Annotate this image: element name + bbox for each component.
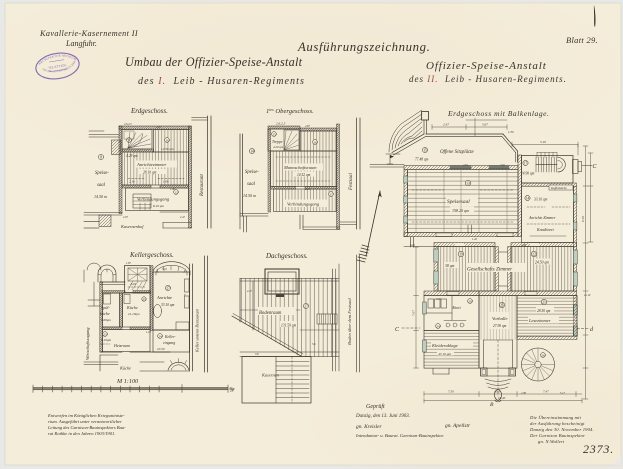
svg-text:14.52 qm: 14.52 qm — [297, 173, 311, 177]
svg-text:33.10 qm: 33.10 qm — [161, 303, 175, 307]
svg-text:des II. Leib - Husaren-Regime: des II. Leib - Husaren-Regiments. — [409, 74, 567, 84]
svg-text:Erdgeschoss.: Erdgeschoss. — [130, 107, 168, 115]
svg-text:Keller unterm Restaurant: Keller unterm Restaurant — [195, 308, 200, 353]
svg-text:saal: saal — [97, 183, 106, 188]
svg-text:25: 25 — [500, 304, 504, 308]
svg-text:2.6.2.5: 2.6.2.5 — [276, 122, 286, 126]
svg-text:77.48 qm: 77.48 qm — [415, 158, 429, 162]
svg-text:5.10: 5.10 — [162, 268, 167, 271]
svg-text:38 qm: 38 qm — [445, 264, 455, 268]
svg-text:Speisesaal: Speisesaal — [447, 199, 470, 205]
svg-text:E: E — [183, 294, 186, 297]
svg-text:Treppe: Treppe — [272, 140, 283, 144]
svg-text:der Ausführung bescheinigt: der Ausführung bescheinigt — [530, 421, 585, 426]
svg-text:Küche: Küche — [119, 366, 131, 371]
svg-text:5.6: 5.6 — [312, 343, 316, 346]
svg-text:21: 21 — [542, 301, 546, 305]
svg-text:Verbindungsgang: Verbindungsgang — [287, 202, 320, 207]
svg-text:2.47: 2.47 — [247, 290, 252, 293]
svg-text:1.26: 1.26 — [472, 238, 477, 241]
svg-text:gn. N.Wallert: gn. N.Wallert — [538, 439, 565, 444]
svg-text:saal: saal — [247, 182, 256, 187]
svg-text:1.06: 1.06 — [170, 188, 175, 191]
svg-text:13: 13 — [466, 182, 470, 186]
svg-text:24: 24 — [436, 325, 440, 329]
svg-text:Festsaal: Festsaal — [349, 172, 354, 191]
svg-text:47.10 qm: 47.10 qm — [438, 352, 452, 356]
svg-text:28.10 qm: 28.10 qm — [143, 171, 157, 175]
svg-text:Ausführungszeichnung.: Ausführungszeichnung. — [297, 40, 430, 54]
svg-text:2.6.2.5: 2.6.2.5 — [124, 123, 132, 126]
svg-text:1tes Obergeschoss.: 1tes Obergeschoss. — [266, 107, 314, 115]
svg-text:8.10: 8.10 — [581, 216, 585, 222]
svg-text:Die Übereinstimmung mit: Die Übereinstimmung mit — [529, 415, 582, 420]
svg-text:16: 16 — [313, 141, 317, 145]
svg-text:2373.: 2373. — [583, 442, 614, 456]
svg-text:Intendantur- u. Baurat. Garni: Intendantur- u. Baurat. Garnison-Bauinsp… — [355, 433, 444, 438]
svg-text:28.50 qm: 28.50 qm — [537, 309, 551, 313]
svg-text:2.10: 2.10 — [129, 180, 135, 184]
svg-text:Restaurant: Restaurant — [200, 173, 205, 197]
svg-text:2.62: 2.62 — [500, 164, 505, 167]
svg-text:Leitung des Garnison-Bauinspek: Leitung des Garnison-Bauinspektors Bau- — [47, 425, 126, 430]
svg-text:rat Rothke in den Jahren 1903/: rat Rothke in den Jahren 1903/1901. — [48, 431, 115, 436]
svg-text:10: 10 — [165, 139, 169, 143]
svg-text:Lesezimmer: Lesezimmer — [528, 318, 551, 323]
svg-text:Kasernen: Kasernen — [261, 373, 280, 378]
svg-text:1.10: 1.10 — [146, 331, 151, 334]
svg-text:Mannschaftsraum: Mannschaftsraum — [283, 165, 317, 170]
svg-text:1.06: 1.06 — [163, 180, 169, 184]
svg-text:14: 14 — [526, 197, 530, 201]
svg-text:23: 23 — [103, 333, 107, 337]
svg-text:4.29: 4.29 — [130, 282, 136, 286]
svg-text:15: 15 — [423, 149, 427, 153]
svg-text:Geprüft: Geprüft — [366, 403, 385, 410]
svg-text:14.50 m: 14.50 m — [94, 194, 107, 199]
svg-text:10.30: 10.30 — [157, 347, 165, 351]
svg-text:Anrichtezimmer: Anrichtezimmer — [136, 162, 167, 167]
svg-text:Boden über dem Festsaal: Boden über dem Festsaal — [347, 297, 352, 345]
svg-text:Offene Sitzplätze: Offene Sitzplätze — [440, 150, 475, 155]
svg-text:6.10qm: 6.10qm — [101, 338, 112, 342]
svg-text:M 1:100: M 1:100 — [116, 378, 139, 385]
svg-text:Kaffeeküche: Kaffeeküche — [550, 186, 567, 190]
svg-text:14.50 qm: 14.50 qm — [161, 147, 174, 151]
svg-text:Verbindungsgang: Verbindungsgang — [137, 197, 170, 202]
svg-text:Entworfen im Königlichen Krieg: Entworfen im Königlichen Kriegsministe- — [47, 413, 125, 418]
svg-text:Heizraum: Heizraum — [113, 343, 130, 348]
svg-text:24.50 qm: 24.50 qm — [535, 261, 549, 265]
svg-text:Erdgeschoss mit Balkenlage.: Erdgeschoss mit Balkenlage. — [447, 109, 549, 118]
svg-text:2.47: 2.47 — [180, 216, 185, 219]
svg-text:6.10: 6.10 — [410, 244, 415, 247]
svg-text:17: 17 — [524, 162, 528, 166]
svg-text:Bodenraum: Bodenraum — [259, 311, 282, 316]
svg-text:Der Garnison Bauinspektor: Der Garnison Bauinspektor — [529, 433, 585, 438]
svg-text:eingang: eingang — [163, 341, 175, 345]
svg-text:24: 24 — [158, 335, 162, 339]
svg-text:4.10: 4.10 — [436, 298, 441, 301]
svg-text:Abort: Abort — [451, 306, 462, 310]
svg-text:19: 19 — [459, 253, 463, 257]
svg-text:12: 12 — [174, 191, 178, 195]
svg-text:2.62: 2.62 — [463, 164, 468, 167]
svg-text:gn. Apellstr: gn. Apellstr — [445, 423, 471, 429]
svg-text:Spül-: Spül- — [101, 305, 110, 310]
svg-text:46p: 46p — [229, 387, 235, 391]
svg-text:22: 22 — [532, 253, 536, 257]
svg-text:8: 8 — [100, 156, 102, 160]
svg-text:21.10: 21.10 — [584, 294, 591, 297]
svg-text:Speise-: Speise- — [95, 171, 109, 176]
svg-text:9.60qm: 9.60qm — [101, 318, 111, 322]
svg-text:Kleiderablage: Kleiderablage — [431, 343, 458, 348]
svg-text:2.08: 2.08 — [521, 392, 526, 395]
svg-text:Kavallerie-Kasernement II: Kavallerie-Kasernement II — [39, 29, 139, 38]
svg-text:4.87: 4.87 — [156, 126, 161, 129]
svg-text:7.07: 7.07 — [412, 310, 416, 316]
svg-text:Konditorei: Konditorei — [536, 228, 554, 232]
svg-text:14.50 m: 14.50 m — [243, 193, 256, 198]
svg-text:5.67: 5.67 — [482, 123, 488, 127]
svg-text:Anrichte: Anrichte — [156, 295, 172, 300]
svg-text:1.30: 1.30 — [508, 130, 514, 134]
svg-text:21.10qm: 21.10qm — [128, 312, 140, 316]
svg-text:Offizier-Speise-Anstalt: Offizier-Speise-Anstalt — [426, 60, 547, 72]
svg-text:27: 27 — [166, 287, 170, 291]
svg-text:4.29 qm: 4.29 qm — [273, 145, 284, 149]
svg-text:Vorhalle: Vorhalle — [492, 316, 507, 321]
svg-text:5.17: 5.17 — [560, 392, 565, 395]
svg-text:Dachgeschoss.: Dachgeschoss. — [265, 252, 308, 260]
svg-text:Anrichte Zimmer: Anrichte Zimmer — [528, 216, 556, 220]
svg-text:rium. Ausgeführt unter verant: rium. Ausgeführt unter verantwortlicher — [48, 419, 122, 424]
svg-text:131.50 qm: 131.50 qm — [281, 324, 297, 328]
svg-text:Danzig, den 13. Juni 1903.: Danzig, den 13. Juni 1903. — [355, 414, 410, 419]
svg-text:Keller-: Keller- — [164, 335, 176, 339]
svg-text:Speise-: Speise- — [245, 170, 259, 175]
svg-text:2.97: 2.97 — [123, 216, 128, 219]
svg-text:158.20 qm: 158.20 qm — [452, 208, 469, 213]
svg-text:4.90: 4.90 — [494, 390, 500, 394]
svg-text:Küche: Küche — [126, 305, 138, 310]
svg-text:19.40: 19.40 — [498, 396, 506, 400]
svg-text:Gesellschafts Zimmer: Gesellschafts Zimmer — [467, 266, 513, 273]
svg-text:Kasernenhof: Kasernenhof — [120, 224, 144, 229]
svg-text:25: 25 — [142, 297, 146, 301]
svg-text:27.90 qm: 27.90 qm — [493, 324, 507, 328]
svg-text:Kellergeschoss.: Kellergeschoss. — [129, 251, 174, 259]
svg-text:26: 26 — [541, 354, 545, 358]
svg-text:15: 15 — [272, 133, 276, 137]
svg-text:Blatt 29.: Blatt 29. — [566, 35, 598, 45]
svg-text:14.90 qm: 14.90 qm — [521, 172, 535, 176]
svg-text:14: 14 — [250, 150, 254, 154]
svg-text:27: 27 — [304, 305, 308, 309]
svg-text:1.87: 1.87 — [126, 262, 131, 265]
svg-text:9: 9 — [128, 139, 130, 143]
svg-text:Wirtschaftszugang: Wirtschaftszugang — [85, 327, 90, 360]
svg-text:20: 20 — [468, 300, 472, 304]
svg-text:4.87: 4.87 — [305, 125, 310, 128]
svg-text:2.47: 2.47 — [443, 123, 449, 127]
svg-text:7.47: 7.47 — [543, 390, 549, 394]
svg-text:des I. Leib - Husaren-Regimen: des I. Leib - Husaren-Regiments — [138, 76, 305, 87]
svg-text:Langfuhr.: Langfuhr. — [65, 39, 97, 48]
svg-text:5.10: 5.10 — [540, 140, 546, 144]
svg-text:7.50: 7.50 — [448, 390, 454, 394]
svg-text:33.10 qm: 33.10 qm — [534, 198, 548, 202]
svg-text:17: 17 — [329, 193, 333, 197]
svg-text:2.10: 2.10 — [305, 188, 310, 191]
svg-text:Umbau der Offizier-Speise-Anst: Umbau der Offizier-Speise-Anstalt — [125, 55, 303, 69]
svg-text:3.8: 3.8 — [255, 353, 259, 356]
svg-text:Danzig den 30. November 1904.: Danzig den 30. November 1904. — [529, 427, 594, 432]
svg-text:2.08: 2.08 — [521, 244, 526, 247]
svg-text:8.10 qm: 8.10 qm — [153, 204, 164, 208]
svg-text:küche: küche — [100, 311, 110, 316]
svg-text:gn. Kreisler: gn. Kreisler — [356, 424, 382, 430]
